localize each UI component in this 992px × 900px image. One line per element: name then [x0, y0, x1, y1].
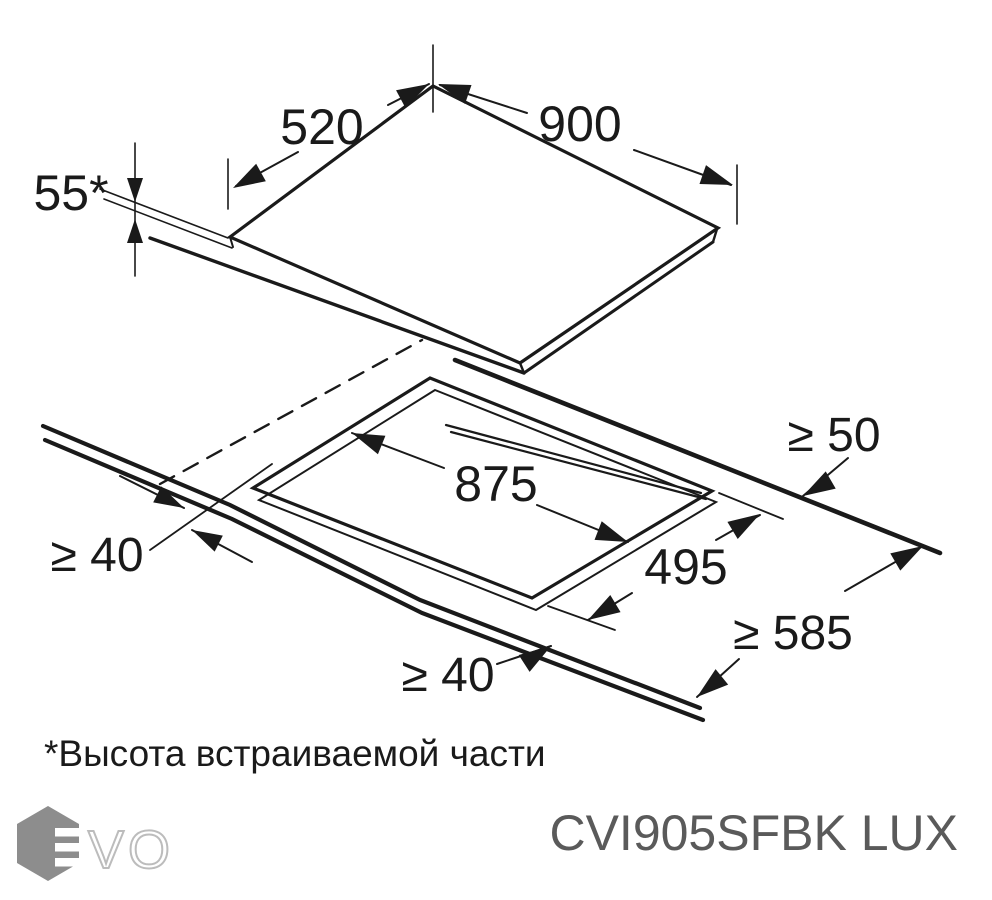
arrowhead-icon	[233, 164, 266, 188]
arrowhead-icon	[803, 471, 836, 496]
glass-level-projection-line	[100, 189, 228, 238]
evo-e-bar	[55, 843, 84, 852]
dim-label-40-left: ≥ 40	[50, 529, 143, 582]
cooktop-body-bottom-line	[150, 238, 524, 373]
dim-label-40-front: ≥ 40	[401, 649, 494, 702]
dim-label-495: 495	[644, 539, 727, 595]
arrowhead-icon	[890, 546, 923, 571]
arrowhead-icon	[127, 178, 143, 202]
evo-e-bar	[55, 828, 84, 837]
arrowhead-icon	[192, 530, 223, 552]
model-name: CVI905SFBK LUX	[549, 805, 958, 861]
worktop-hidden-edge-dashed	[160, 340, 422, 484]
cooktop-body-right-edge	[524, 242, 713, 373]
arrowhead-icon	[595, 521, 628, 542]
dim-label-50: ≥ 50	[787, 409, 880, 462]
arrowhead-icon	[438, 84, 472, 104]
dim-label-520: 520	[280, 99, 363, 155]
arrowhead-icon	[727, 514, 760, 539]
dim-label-585: ≥ 585	[733, 607, 853, 660]
arrowhead-icon	[588, 595, 621, 620]
arrowhead-icon	[699, 165, 733, 185]
footnote-text: *Высота встраиваемой части	[44, 733, 546, 774]
installation-diagram: 520 900 55* 875 495 ≥ 50 ≥ 585 ≥ 40 ≥ 40…	[0, 0, 992, 900]
evo-e-bar	[55, 858, 84, 867]
arrowhead-icon	[396, 84, 429, 108]
evo-vo-text: VO	[88, 820, 174, 880]
glass-level-projection-line2	[104, 199, 232, 248]
arrowhead-icon	[352, 433, 385, 454]
technical-drawing-svg: 520 900 55* 875 495 ≥ 50 ≥ 585 ≥ 40 ≥ 40…	[0, 0, 992, 900]
cooktop-drawing	[100, 86, 718, 373]
arrowhead-icon	[127, 219, 143, 243]
worktop-front-edge-bottom	[45, 440, 703, 720]
dim-label-900: 900	[538, 96, 621, 152]
brand-logo: VO	[17, 806, 174, 881]
dim-label-55: 55*	[33, 165, 108, 221]
dim-495-ext-rear	[719, 493, 783, 519]
dim-label-875: 875	[454, 456, 537, 512]
